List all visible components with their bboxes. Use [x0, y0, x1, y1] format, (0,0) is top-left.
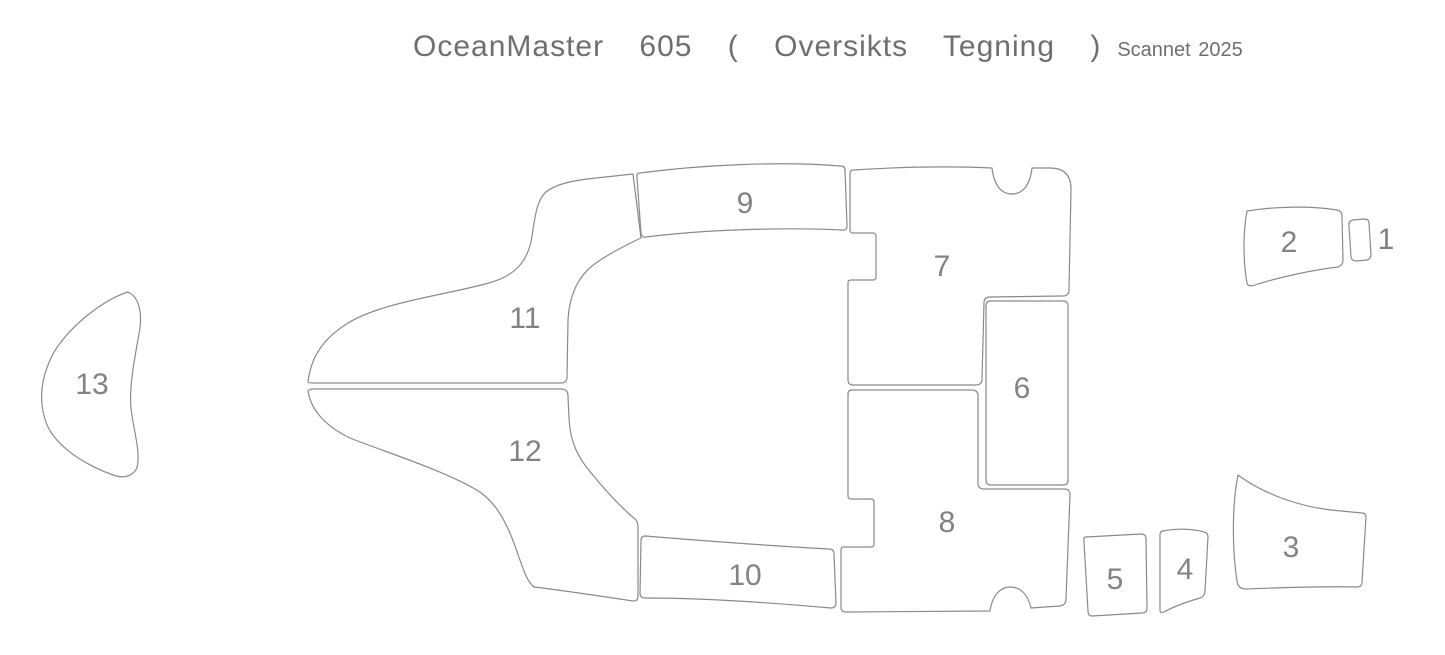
- panel-3-label: 3: [1283, 531, 1300, 564]
- panel-11: 11: [308, 174, 641, 383]
- panel-11-outline: [308, 174, 641, 383]
- panel-12-outline: [308, 389, 638, 601]
- panel-11-label: 11: [509, 302, 540, 335]
- panel-6-label: 6: [1014, 372, 1031, 405]
- panel-2: 2: [1244, 207, 1343, 286]
- panel-7-outline: [848, 167, 1071, 385]
- panel-3-outline: [1233, 475, 1366, 589]
- panel-13-label: 13: [75, 368, 108, 401]
- panel-7-label: 7: [934, 250, 951, 283]
- panel-4-label: 4: [1177, 553, 1194, 586]
- panel-1-label: 1: [1378, 223, 1395, 256]
- deck-panels-drawing: 11 12 9 10 7 8 6: [0, 0, 1445, 655]
- panel-5-label: 5: [1107, 563, 1124, 596]
- panel-7: 7: [848, 167, 1071, 385]
- panel-12: 12: [308, 389, 638, 601]
- panel-1: 1: [1349, 219, 1395, 261]
- panel-10-label: 10: [728, 559, 761, 592]
- panel-6: 6: [986, 301, 1068, 485]
- panel-4: 4: [1160, 529, 1208, 612]
- panel-3: 3: [1233, 475, 1366, 589]
- panel-1-outline: [1349, 219, 1371, 261]
- panel-9: 9: [637, 164, 847, 237]
- panel-8: 8: [841, 390, 1070, 612]
- panel-13: 13: [42, 292, 141, 477]
- panel-8-outline: [841, 390, 1070, 612]
- panel-10: 10: [640, 536, 836, 608]
- panel-12-label: 12: [508, 435, 541, 468]
- panel-9-label: 9: [737, 187, 754, 220]
- panel-8-label: 8: [939, 506, 956, 539]
- drawing-canvas: OceanMaster 605 ( Oversikts Tegning ) Sc…: [0, 0, 1445, 655]
- panel-5: 5: [1084, 534, 1147, 616]
- panel-2-label: 2: [1281, 226, 1298, 259]
